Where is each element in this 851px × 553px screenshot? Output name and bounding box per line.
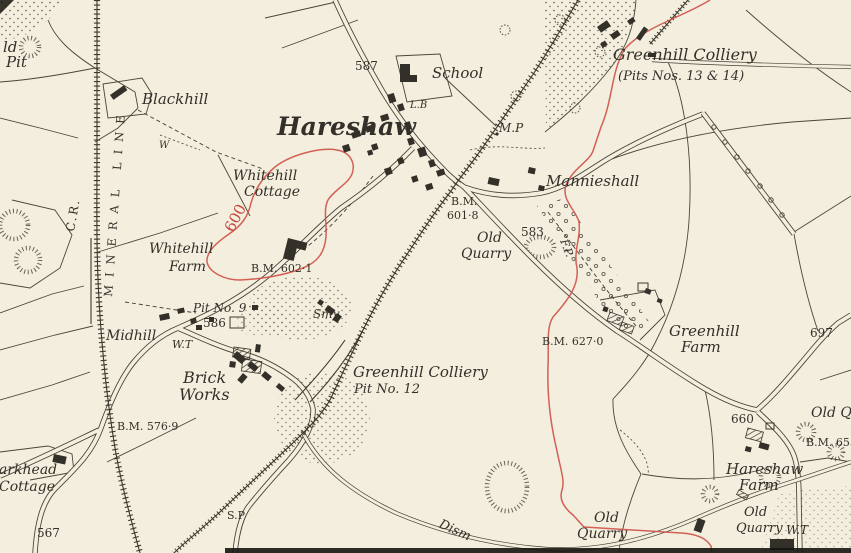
map-label-old-pit-line2: Pit [5, 53, 28, 71]
map-label-water-trough-midhill: W.T [172, 338, 194, 351]
map-label-parkhead-cottage-1: arkhead [0, 462, 57, 478]
map-label-bm-576-9: B.M. 576·9 [117, 420, 178, 433]
map-label-old-quarry-farm-1: Old [744, 505, 767, 520]
map-label-letter-box: L.B [409, 100, 427, 111]
map-label-greenhill-farm-2: Farm [680, 338, 721, 356]
map-label-whitehill-cottage-1: Whitehill [233, 168, 297, 184]
map-label-bm-601-8-b: 601·8 [447, 209, 479, 222]
map-label-old-quarry-edge: Old Q [811, 405, 851, 421]
map-label-greenhill-colliery-12-pit: Pit No. 12 [353, 382, 420, 397]
map-label-water-trough-farm: W.T [786, 523, 809, 537]
map-label-spot-height-660: 660 [731, 412, 754, 426]
map-label-spot-height-587: 587 [355, 59, 378, 73]
map-label-mannieshall: Mannieshall [545, 172, 639, 190]
map-label-spot-height-697: 697 [810, 326, 833, 340]
map-label-whitehill-cottage-2: Cottage [244, 184, 300, 200]
map-label-spot-height-583: 583 [521, 225, 544, 239]
map-label-old-quarry-farm-2: Quarry [736, 521, 783, 536]
map-label-whitehill-farm-2: Farm [168, 259, 206, 275]
map-label-bm-601-8-a: B.M. [451, 195, 477, 208]
map-label-old-quarry-south-1: Old [594, 510, 619, 526]
map-label-blackhill: Blackhill [141, 90, 209, 108]
map-label-spot-height-567: 567 [37, 526, 60, 540]
map-label-greenhill-colliery-13-14: Greenhill Colliery [613, 45, 758, 64]
map-label-old-quarry-south-2: Quarry [577, 526, 628, 542]
map-label-midhill: Midhill [105, 328, 156, 344]
map-screenshot: ldPitBlackhillC.R.MINERAL LINE587SchoolL… [0, 0, 851, 553]
map-label-greenhill-colliery-pits: (Pits Nos. 13 & 14) [618, 69, 744, 84]
map-label-signal-post: S.P [227, 509, 246, 522]
map-label-mile-post: M.P [498, 121, 524, 135]
map-label-old-quarry-center-2: Quarry [461, 246, 512, 262]
map-label-hareshaw-farm-2: Farm [738, 476, 779, 494]
map-label-well: W [159, 140, 170, 151]
map-label-pit-no-9: Pit No. 9 [192, 301, 247, 315]
map-label-whitehill-farm-1: Whitehill [149, 241, 213, 257]
map-label-greenhill-colliery-12: Greenhill Colliery [353, 363, 488, 381]
map-label-smithy: Smy [313, 307, 340, 321]
map-label-spot-height-586: 586 [203, 316, 226, 330]
map-label-bm-602-1: B.M. 602·1 [251, 262, 312, 275]
map-canvas: ldPitBlackhillC.R.MINERAL LINE587SchoolL… [0, 0, 851, 553]
map-label-school: School [432, 64, 483, 82]
map-label-brick-works-2: Works [179, 385, 230, 404]
map-label-parkhead-cottage-2: Cottage [0, 479, 55, 495]
map-label-hareshaw-village: Hareshaw [276, 112, 417, 141]
map-label-bm-655: B.M. 655 [806, 436, 851, 449]
map-label-bm-627-0: B.M. 627·0 [542, 335, 603, 348]
map-label-old-quarry-center-1: Old [477, 230, 502, 246]
